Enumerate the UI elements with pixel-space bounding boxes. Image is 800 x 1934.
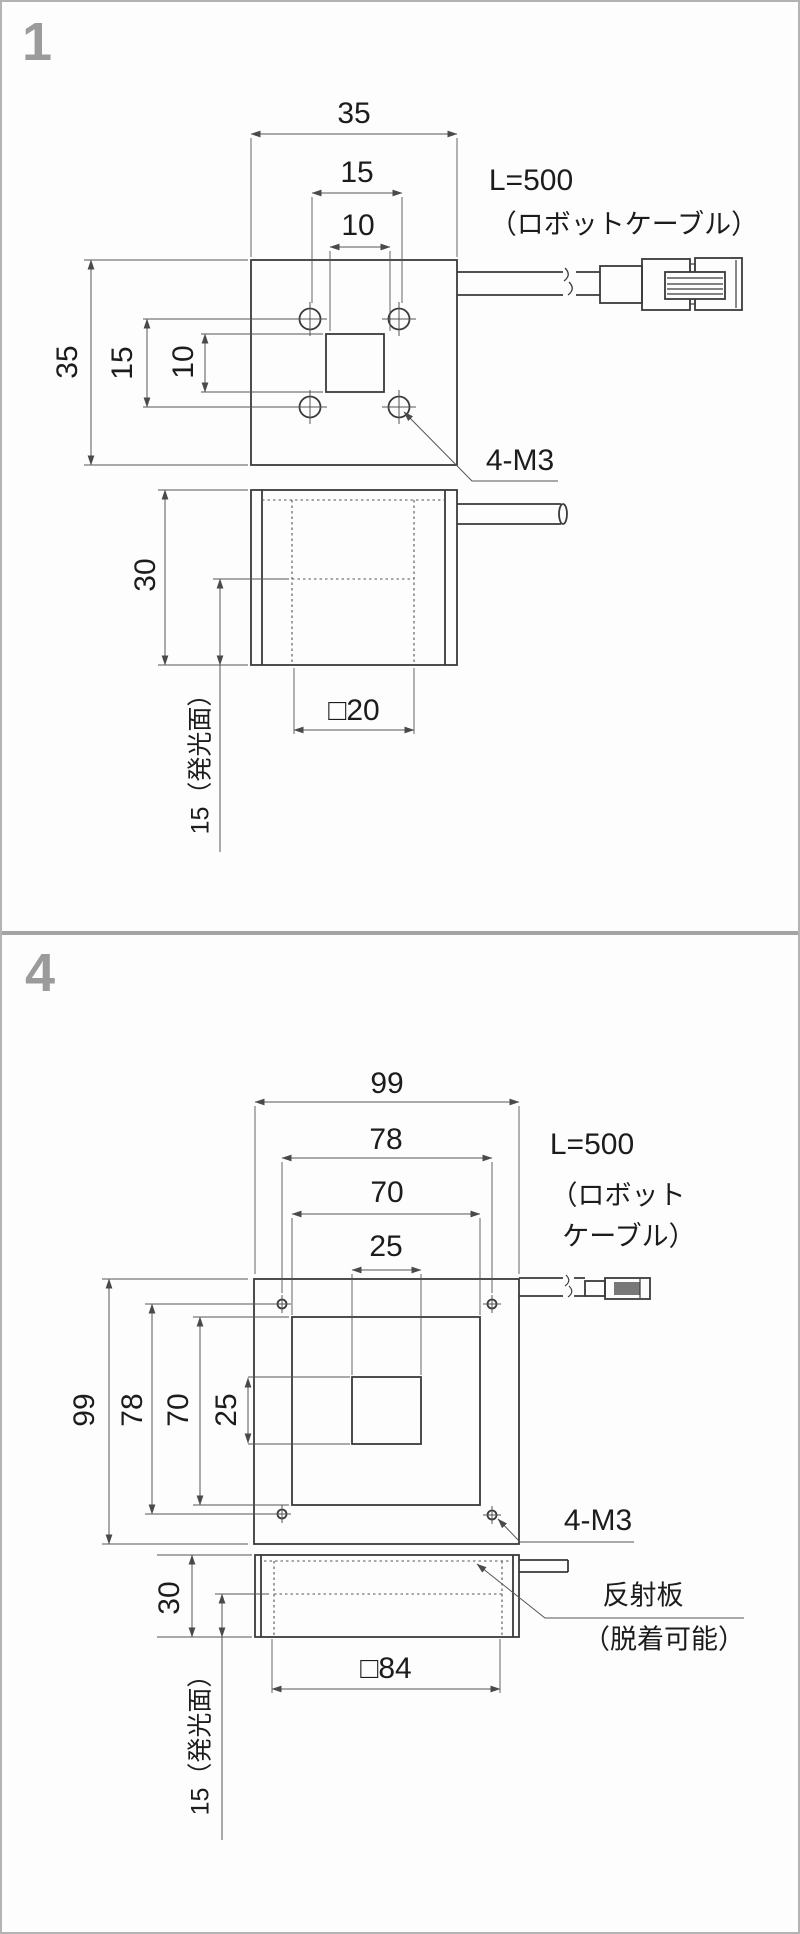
p4-dim-hole-spacing-top: 78 [369,1125,402,1155]
p4-dim-height-left: 99 [70,1393,100,1426]
panel1-cable-connector [457,258,742,310]
p1-dim-emitting-size: □20 [328,696,380,726]
p4-dim-inner-top: 70 [370,1178,403,1208]
p4-dim-side-height: 30 [155,1581,185,1614]
catalog-drawing-sheet: 1 35 15 10 35 15 10 L=500 （ロボットケーブル） 4-M… [0,0,800,1934]
p4-reflector-label-line2: （脱着可能） [583,1627,745,1654]
p1-dim-height-left: 35 [53,345,83,378]
panel4-top-view [254,1279,519,1544]
p1-dim-hole-spacing-top: 15 [340,158,373,188]
panel4-hidden-lines [264,1561,511,1637]
p1-dim-width-top: 35 [337,99,370,129]
panel-1-index: 1 [22,11,52,73]
p4-cable-length-note: L=500 [550,1130,634,1160]
p1-dim-side-height: 30 [131,558,161,591]
panel1-hole-crosshairs [293,302,416,424]
p1-cable-length-note: L=500 [489,166,573,196]
panel4-cable-connector [519,1275,650,1299]
panel-4-index: 4 [25,942,55,1004]
panel1-side-view [251,490,567,665]
p4-dim-inner-left: 70 [164,1393,194,1426]
p4-dim-width-top: 99 [370,1069,403,1099]
panel4-hole-crosshairs [273,1295,501,1524]
p1-cable-type-note: （ロボットケーブル） [490,212,758,239]
p4-cable-type-note-line2: ケーブル） [562,1224,695,1251]
p1-emitting-surface-label: 15（発光面） [189,682,214,835]
panel-divider [2,931,798,935]
p1-screw-callout: 4-M3 [486,446,554,476]
p4-dim-window-left: 25 [212,1393,242,1426]
p4-dim-emitting-size: □84 [360,1654,412,1684]
p4-emitting-surface-label: 15（発光面） [189,1663,214,1816]
panel4-dimension-lines [109,1102,519,1840]
p4-screw-callout: 4-M3 [564,1506,632,1536]
p1-dim-hole-spacing-left: 15 [108,346,138,379]
panel1-extension-lines [84,138,457,734]
p4-cable-type-note-line1: （ロボット [551,1183,686,1210]
panel4-side-view [255,1555,568,1637]
p4-reflector-label-line1: 反射板 [603,1583,684,1610]
p4-dim-window-top: 25 [369,1232,402,1262]
p1-dim-window-left: 10 [169,345,199,378]
p1-dim-window-top: 10 [341,211,374,241]
p4-dim-hole-spacing-left: 78 [118,1393,148,1426]
panel1-hidden-lines [262,500,445,665]
